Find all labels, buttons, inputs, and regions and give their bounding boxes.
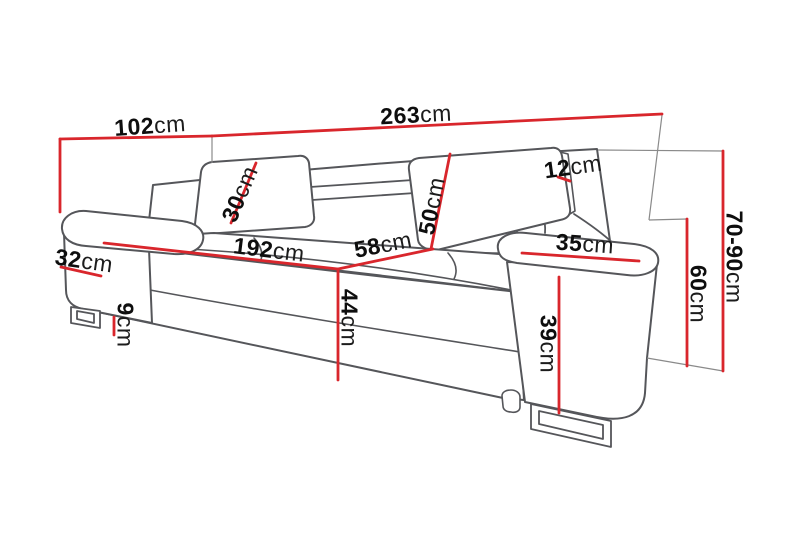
dim-label-seat-height: 44cm [338,289,361,347]
dim-label-armrest-height: 60cm [687,265,710,323]
right-armrest-body [507,262,657,419]
extension-line-floor [647,358,723,371]
sofa-line-art [0,0,800,533]
dim-label-armrest-front-height: 39cm [537,315,560,373]
dim-label-total-depth: 102cm [114,112,187,140]
left-leg [71,307,100,328]
extension-line-right-top [649,115,662,220]
dim-label-total-height: 70-90cm [723,211,746,304]
sofa-dimension-diagram: 102cm 263cm 30cm 50cm 12cm 192cm 58cm 35… [0,0,800,533]
extension-line-back-top [598,150,723,151]
extension-line-armrest-top [649,219,687,220]
front-foot [502,390,520,412]
dim-label-armrest-top-width: 35cm [555,230,615,257]
dim-label-leg-height: 9cm [114,303,137,348]
dim-label-total-width: 263cm [380,102,453,129]
